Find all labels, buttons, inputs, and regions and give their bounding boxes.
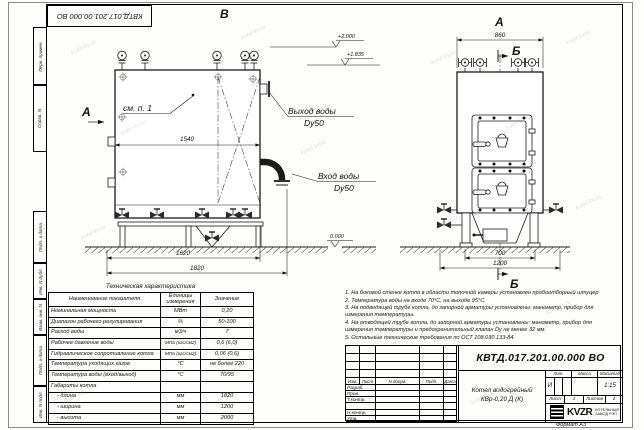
- roof-valve-icon: [474, 58, 487, 72]
- elevation-zero-mark: 0.000: [327, 234, 353, 247]
- view-arrow-a-left: А: [81, 105, 104, 122]
- boiler-drawing: 1540 1620 1820 0.000: [46, 4, 621, 292]
- svg-text:Dy50: Dy50: [334, 183, 354, 193]
- svg-text:+2.000: +2.000: [338, 34, 356, 40]
- svg-text:1820: 1820: [190, 265, 205, 272]
- svg-text:1200: 1200: [493, 260, 508, 267]
- section-mark-b-bottom: Б: [498, 268, 519, 291]
- document-number: КВТД.017.201.00.000 ВО: [459, 346, 622, 371]
- ground-line-right: [400, 247, 570, 253]
- svg-text:700: 700: [495, 250, 506, 257]
- svg-text:Б: Б: [510, 277, 519, 291]
- svg-text:Выход воды: Выход воды: [288, 106, 337, 116]
- svg-text:А: А: [81, 105, 91, 119]
- side-stamp-vzam-inv: Взам. инв. N: [33, 298, 47, 336]
- elevation-outlet-mark: +1.835: [307, 52, 380, 65]
- door-hinge: [529, 200, 535, 204]
- format-note: Формат А3: [521, 422, 621, 428]
- table-row: Гидравлическое сопротивление котлаМПа (к…: [49, 349, 254, 360]
- masshtab-value: 1:15: [598, 377, 623, 396]
- table-row: Температура уходящих газов°Сне более 220: [49, 360, 254, 371]
- safety-valve-icon: [213, 51, 222, 70]
- drawing-sheet: КВТД.017.201.00.000 ВО Перв. примен. Спр…: [0, 0, 644, 430]
- side-valve-icon: [437, 219, 451, 229]
- outlet-label: Выход воды Dy50: [269, 92, 354, 128]
- svg-text:0.000: 0.000: [330, 234, 345, 240]
- lit-value: И: [546, 377, 555, 396]
- table-row: Расход водым3/ч7: [49, 328, 254, 339]
- side-stamp-podp-data-2: Подп. и дата: [33, 334, 47, 387]
- table-row: - высотамм2000: [49, 413, 254, 424]
- drain-valve-icon: [205, 232, 219, 242]
- door-hinge: [529, 180, 535, 184]
- svg-text:Вход воды: Вход воды: [318, 171, 360, 181]
- revision-header-row: Изм. Лист N докум. Подп. Дата: [346, 378, 458, 385]
- water-inlet-elbow: [260, 162, 290, 185]
- roof-valve-icon: [512, 58, 525, 72]
- svg-text:Dy50: Dy50: [304, 118, 324, 128]
- safety-valve-icon: [118, 51, 127, 70]
- inlet-label: Вход воды Dy50: [292, 171, 376, 193]
- elevation-top-mark: +2.000: [270, 34, 364, 47]
- side-stamp-perv-primen: Перв. примен.: [33, 27, 47, 86]
- side-valve-icon: [437, 204, 451, 214]
- title-block-right: КВТД.017.201.00.000 ВО Котел водогрейный…: [458, 346, 622, 422]
- table-row: Габариты котла: [49, 381, 254, 392]
- svg-text:860: 860: [495, 32, 506, 39]
- side-valve-icon: [549, 204, 563, 214]
- view-label-v: В: [220, 7, 229, 21]
- boiler-front-view: [437, 54, 563, 272]
- tech-table-header-row: Наименование показателя Единицы измерени…: [49, 293, 254, 307]
- tech-table: Наименование показателя Единицы измерени…: [48, 292, 254, 425]
- note-line: 4. На отводящей трубе котла, до запорной…: [345, 320, 619, 334]
- roof-valve-icon: [526, 58, 539, 72]
- lower-furnace-door: [472, 168, 535, 213]
- safety-valve-icon: [250, 51, 259, 70]
- revision-grid: [346, 346, 458, 378]
- tech-table-title: Техническая характеристика: [48, 283, 253, 290]
- listov-value: 2: [606, 395, 623, 404]
- table-row: - ширинамм1200: [49, 403, 254, 414]
- table-row: Диапазон рабочего регулирования%50-100: [49, 317, 254, 328]
- note-line: 3. На подводящей трубе котла, до запорно…: [345, 305, 619, 319]
- massa-value: [572, 377, 598, 396]
- col-header: Наименование показателя: [49, 293, 161, 307]
- side-stamp-podp-data-1: Подп. и дата: [33, 211, 47, 264]
- table-row: Рабочее давление водыМПа (кгс/см2)0,6 (6…: [49, 339, 254, 350]
- technical-notes: 1. На боковой стенке котла в области топ…: [345, 290, 619, 342]
- col-header: Значение: [201, 293, 254, 307]
- title-block-left: Изм. Лист N докум. Подп. Дата Разраб. Пр…: [346, 346, 458, 422]
- svg-text:+1.835: +1.835: [347, 52, 365, 58]
- col-header: Единицы измерения: [161, 293, 201, 307]
- upper-furnace-door: [472, 115, 535, 167]
- door-handle: [473, 142, 486, 147]
- table-row: Температура воды (вход/выход)°С70/95: [49, 371, 254, 382]
- note-line: 5. Остальные технические требования по О…: [345, 335, 619, 342]
- kvzr-logo-icon: [550, 405, 564, 419]
- water-outlet-stub: [260, 81, 269, 97]
- staff-rows: Разраб. Пров. Т.контр. Н.контр. Утв.: [346, 385, 458, 422]
- title-block: Изм. Лист N докум. Подп. Дата Разраб. Пр…: [345, 345, 621, 421]
- roof-valve-icon: [459, 58, 472, 72]
- safety-valve-icon: [141, 51, 150, 70]
- product-name: Котел водогрейный КВр-0,20 Д (К): [459, 370, 545, 422]
- note-line: 1. На боковой стенке котла в области топ…: [345, 290, 619, 297]
- boiler-side-view: [108, 51, 290, 247]
- table-row: Номинальная мощностьМВт0,20: [49, 307, 254, 318]
- ground-line-left: [85, 247, 376, 253]
- side-stamp-sprav-no: Справ. N: [33, 84, 47, 152]
- safety-valve-icon: [241, 51, 250, 70]
- ash-hopper: [472, 213, 528, 243]
- svg-text:1540: 1540: [180, 136, 195, 143]
- door-hinge: [529, 151, 535, 155]
- support-frame: [118, 222, 263, 247]
- svg-text:см. п. 1: см. п. 1: [123, 103, 152, 113]
- company-logo: KVZR КОТЕЛЬНЫЙ ЗАВОД РЭП: [546, 403, 623, 421]
- door-handle: [473, 190, 486, 195]
- list-value: 1: [565, 395, 584, 404]
- side-stamp-inv-podl: Инв. N подл.: [33, 385, 47, 423]
- side-stamp-inv-dubl: Инв. N дубл.: [33, 262, 47, 300]
- title-block-sub: Лит. Масса Масштаб И 1:15 Лист 1 Листов …: [545, 370, 623, 422]
- table-row: - длинамм1820: [49, 392, 254, 403]
- door-hinge: [529, 129, 535, 133]
- note-line: 2. Температура воды на входе 70°С, на вы…: [345, 298, 619, 305]
- view-label-a-top: А: [494, 15, 504, 29]
- svg-text:Б: Б: [512, 44, 521, 58]
- svg-text:1620: 1620: [176, 250, 191, 257]
